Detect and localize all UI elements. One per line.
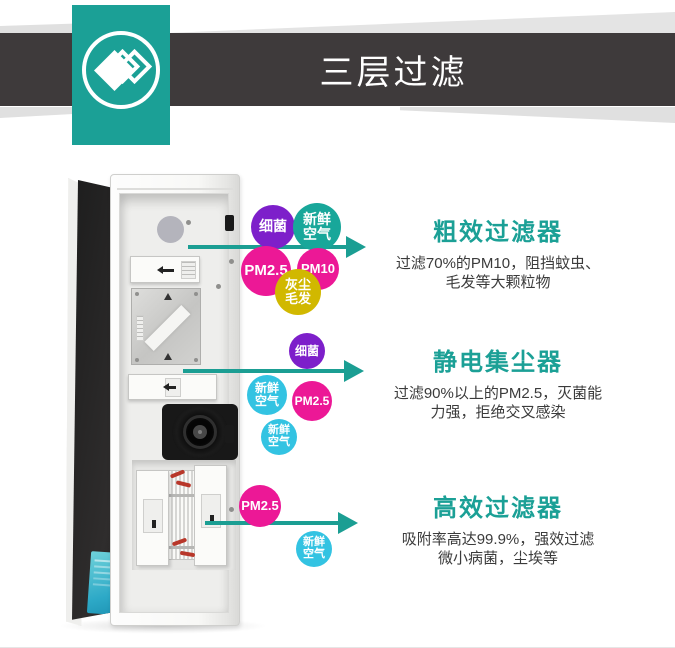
- door-latch: [225, 215, 234, 231]
- air-purifier-illustration: [66, 172, 242, 632]
- layered-diamond-chevron-icon: [82, 31, 160, 109]
- ribbon-wedge: [400, 107, 675, 123]
- intake-opening: [157, 216, 184, 243]
- infographic-page: 三层过滤: [0, 0, 675, 648]
- filter-canister-right: [194, 465, 227, 566]
- section-hepa-filter: 高效过滤器 吸附率高达99.9%，强效过滤 微小病菌，尘埃等: [388, 488, 608, 568]
- flow-arrow-icon: [164, 353, 172, 360]
- bubble-pm25: PM2.5: [239, 485, 281, 527]
- pointer-arrowhead-3: [338, 512, 358, 534]
- coarse-filter-box: [130, 256, 200, 283]
- fan-blower: [172, 405, 228, 459]
- section-title: 静电集尘器: [388, 342, 608, 377]
- electrostatic-filter-box: [128, 374, 217, 400]
- cabinet-body: [110, 174, 240, 626]
- pointer-arrowhead-1: [346, 236, 366, 258]
- flow-arrow-icon: [164, 293, 172, 300]
- section-body: 过滤90%以上的PM2.5，灭菌能 力强，拒绝交叉感染: [388, 384, 608, 422]
- bubble-fresh-air: 新鲜 空气: [247, 375, 287, 415]
- bubble-pm25: PM2.5: [292, 381, 332, 421]
- filter-canister-left: [136, 470, 169, 566]
- section-electrostatic-collector: 静电集尘器 过滤90%以上的PM2.5，灭菌能 力强，拒绝交叉感染: [388, 342, 608, 422]
- section-body: 吸附率高达99.9%，强效过滤 微小病菌，尘埃等: [388, 530, 608, 568]
- cabinet-interior: [119, 193, 229, 613]
- bubble-fresh-air: 新鲜 空气: [293, 203, 341, 251]
- section-title: 高效过滤器: [388, 488, 608, 523]
- bubble-fresh-air: 新鲜 空气: [261, 419, 297, 455]
- bubble-bacteria: 细菌: [289, 333, 325, 369]
- flow-arrow-icon: [169, 386, 176, 389]
- ribbon-wedge: [170, 12, 675, 34]
- section-body: 过滤70%的PM10，阻挡蚊虫、 毛发等大颗粒物: [388, 254, 608, 292]
- brand-logo-block: [72, 5, 170, 145]
- pointer-arrowhead-2: [344, 360, 364, 382]
- bubble-fresh-air: 新鲜 空气: [296, 531, 332, 567]
- section-coarse-filter: 粗效过滤器 过滤70%的PM10，阻挡蚊虫、 毛发等大颗粒物: [388, 212, 608, 292]
- pointer-arrow-2: [183, 369, 346, 373]
- flow-arrow-icon: [163, 269, 174, 272]
- door-latch: [225, 425, 234, 443]
- esp-module: [131, 288, 201, 365]
- bubble-dust-hair: 灰尘 毛发: [275, 269, 321, 315]
- section-title: 粗效过滤器: [388, 212, 608, 247]
- page-title: 三层过滤: [320, 45, 468, 94]
- bubble-bacteria: 细菌: [251, 205, 295, 249]
- hepa-compartment: [132, 460, 236, 570]
